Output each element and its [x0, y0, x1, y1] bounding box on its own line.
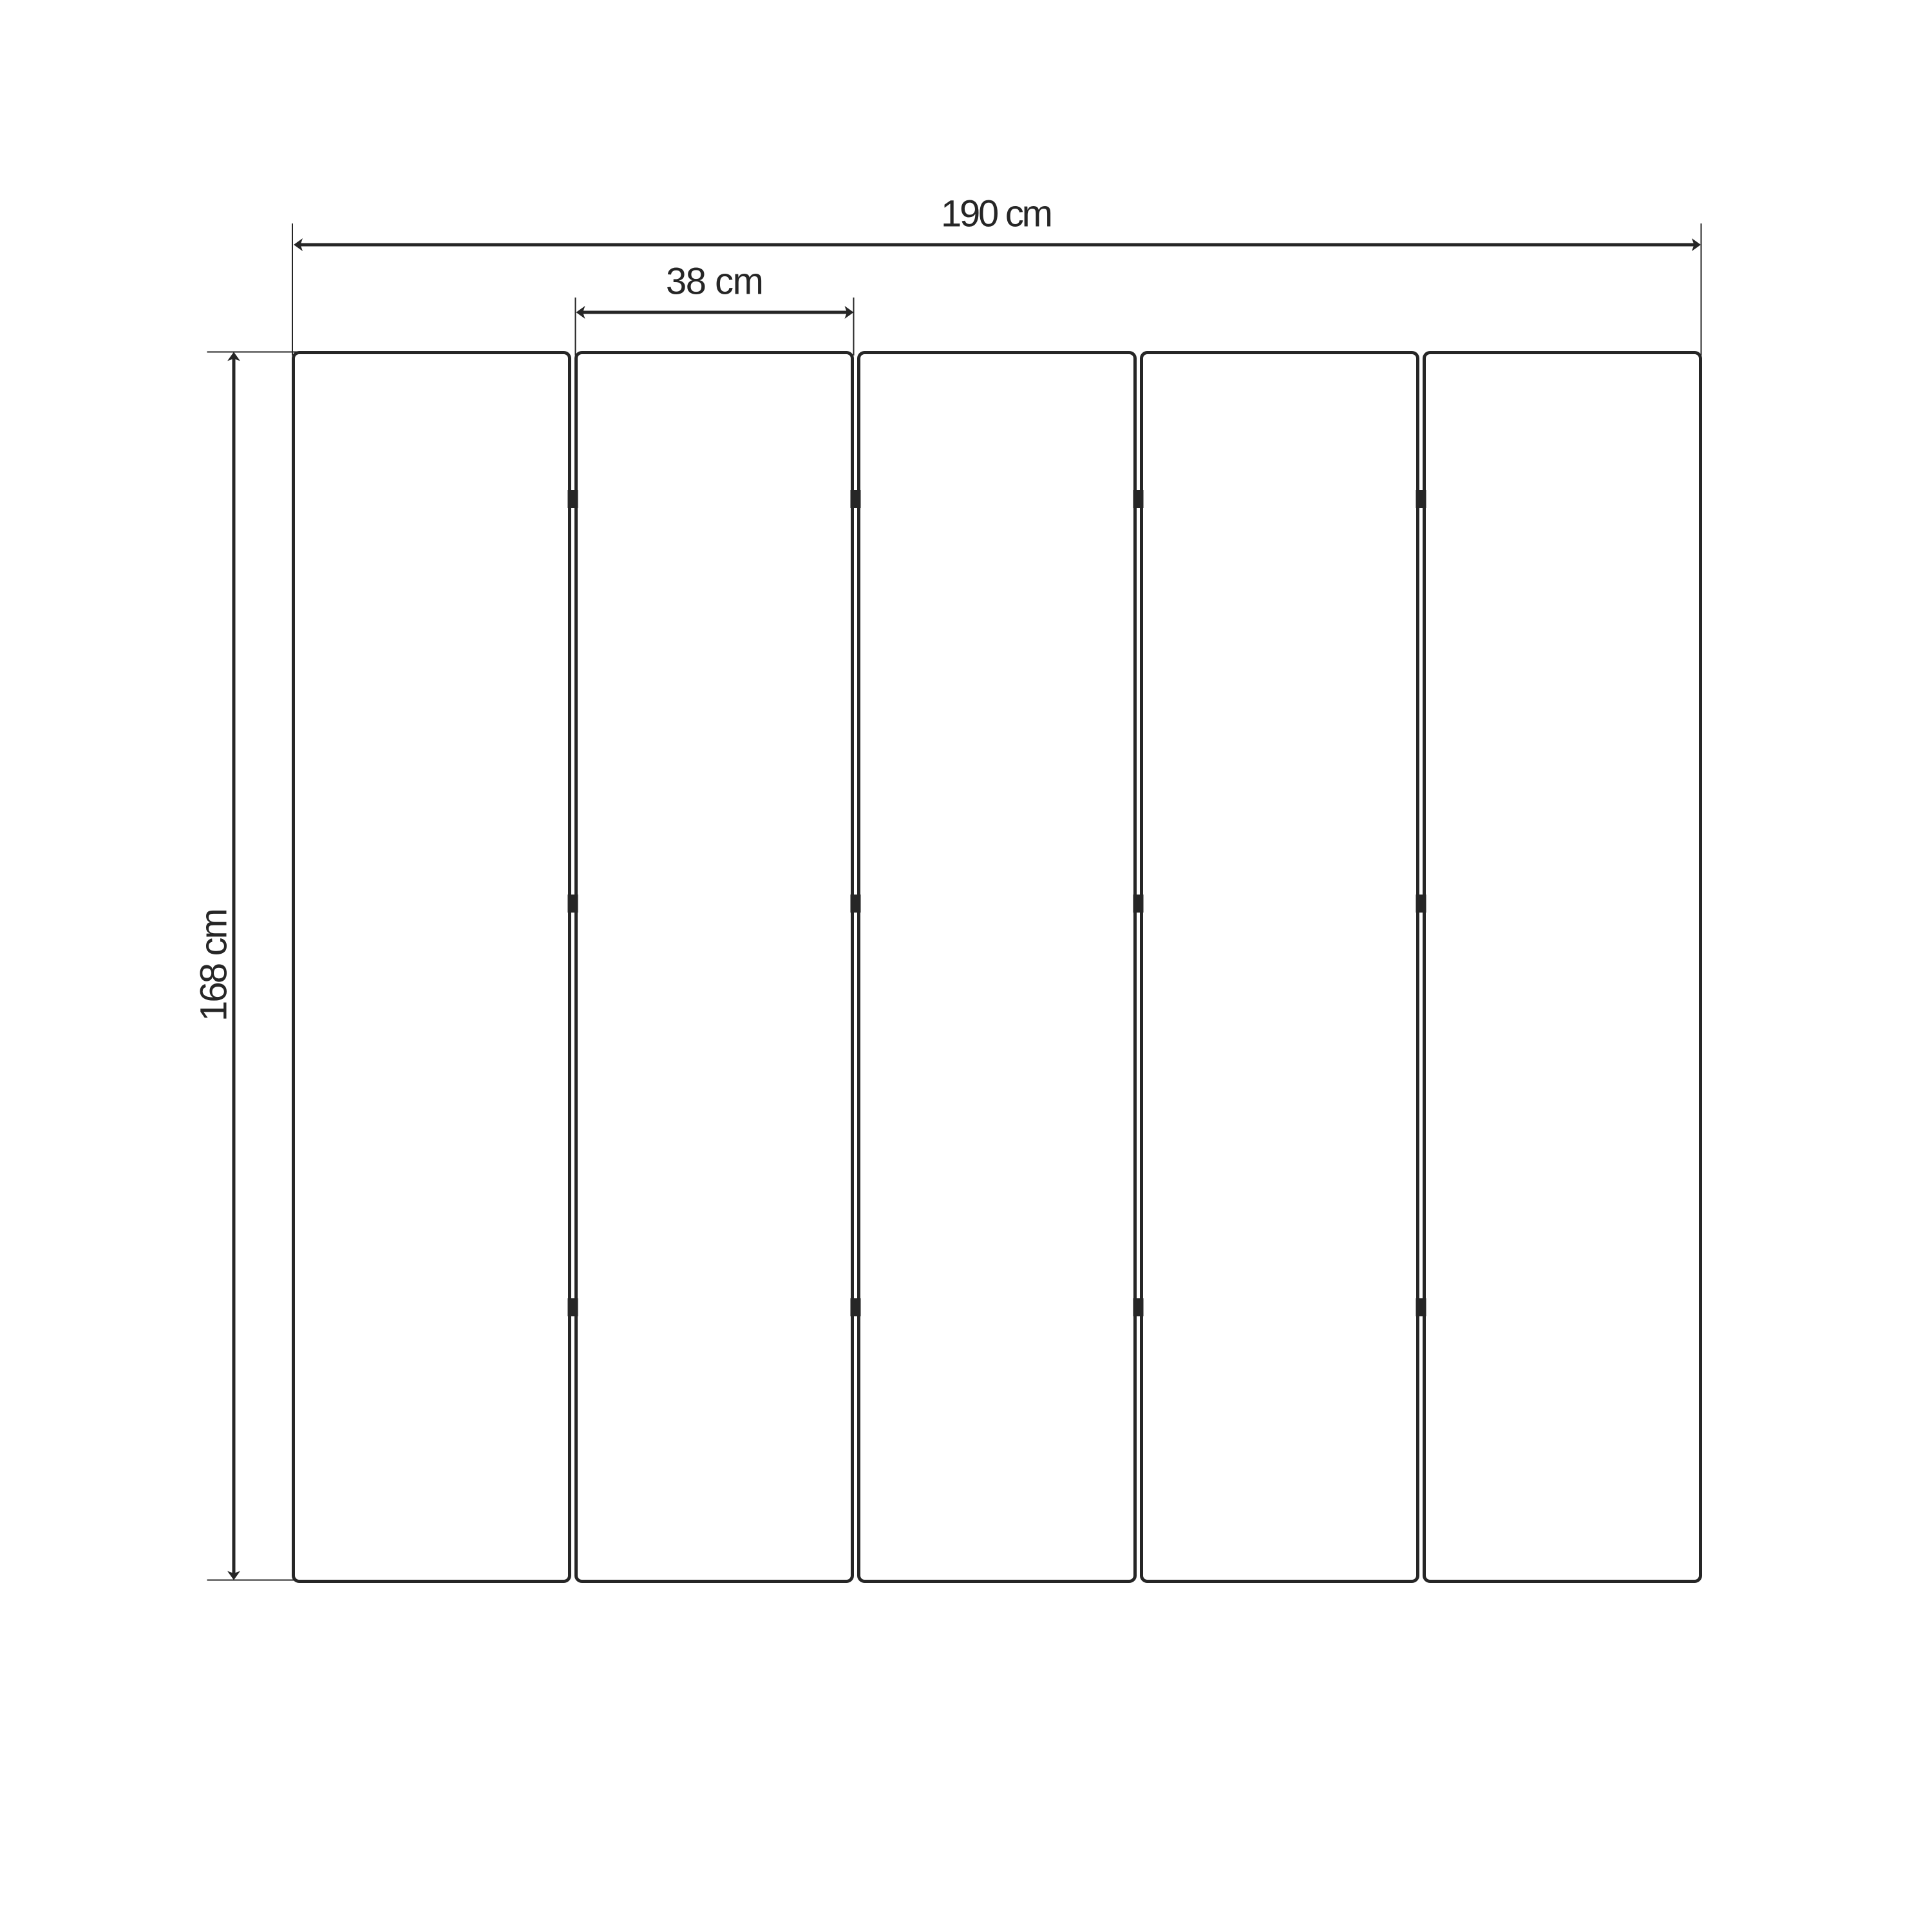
svg-text:38 cm: 38 cm [666, 261, 764, 303]
svg-text:190 cm: 190 cm [941, 193, 1053, 235]
svg-text:168 cm: 168 cm [193, 908, 235, 1021]
